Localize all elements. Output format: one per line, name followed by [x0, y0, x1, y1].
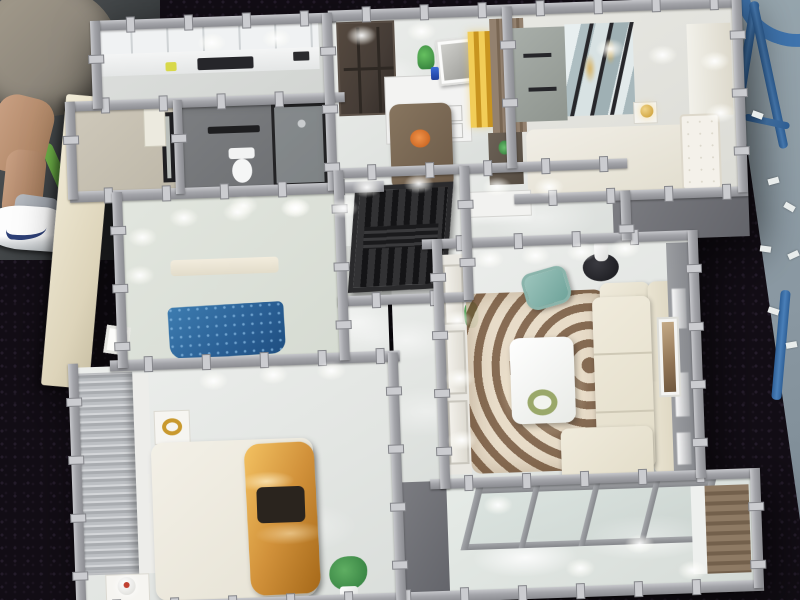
wall-clip — [732, 88, 748, 98]
balcony-wood-cabinet — [704, 484, 751, 573]
wall-clip — [72, 571, 88, 581]
cooktop — [197, 56, 253, 70]
wall-clip — [320, 46, 336, 56]
wall-clip — [126, 16, 136, 32]
wall-clip — [548, 190, 558, 206]
wall-clip — [618, 224, 634, 234]
wall-clip — [70, 513, 86, 523]
wall-clip — [638, 469, 648, 485]
wall-clip — [88, 54, 104, 64]
yellow-item — [165, 62, 176, 71]
wall-clip — [392, 560, 408, 570]
wall-clip — [522, 473, 532, 489]
wall-clip — [110, 226, 126, 236]
wall-clip — [162, 185, 172, 201]
apartment-scale-model — [46, 0, 773, 600]
wall-clip — [734, 146, 750, 156]
wall-clip — [375, 348, 385, 364]
wall-clip — [688, 322, 704, 332]
wall-clip — [66, 397, 82, 407]
wall-clip — [541, 158, 551, 174]
flower-tray — [256, 486, 305, 524]
wall-clip — [502, 98, 518, 108]
wall-clip — [420, 4, 430, 20]
wall-clip — [425, 162, 435, 178]
wall-clip — [372, 292, 382, 308]
toilet-tank — [228, 147, 254, 159]
wall-clip — [278, 181, 288, 197]
wall-clip — [386, 386, 402, 396]
wall-clip — [202, 354, 212, 370]
wall-clip — [651, 0, 661, 12]
wall-clip — [500, 40, 516, 50]
wall-clip — [362, 6, 372, 22]
wall-clip — [464, 475, 474, 491]
wall-clip — [184, 14, 194, 30]
wall-clip — [220, 183, 230, 199]
wall-clip — [228, 595, 238, 600]
wall-clip — [434, 389, 450, 399]
wall-clip — [664, 186, 674, 202]
wall-clip — [730, 30, 746, 40]
wall-clip — [634, 581, 644, 597]
glass-sliding-doors — [461, 479, 716, 550]
wall-clip — [114, 342, 130, 352]
wall-clip — [300, 10, 310, 26]
wardrobe-doors — [512, 26, 567, 122]
wall-clip — [750, 560, 766, 570]
wall-clip — [535, 0, 545, 16]
shower-enclosure — [271, 103, 328, 187]
wall-clip — [286, 593, 296, 600]
kitchen-sink — [293, 51, 309, 61]
wall-clip — [112, 284, 128, 294]
tufted-headboard — [680, 113, 723, 190]
wall-clip — [457, 200, 473, 210]
wall-clip — [572, 231, 582, 247]
framed-art — [657, 317, 682, 398]
mirrored-wardrobe — [564, 22, 635, 116]
wall-clip — [333, 262, 349, 272]
wall-clip — [576, 583, 586, 599]
wall-clip — [709, 0, 719, 10]
wall-clip — [436, 447, 452, 457]
wall-clip — [260, 352, 270, 368]
wall-clip — [514, 233, 524, 249]
wall-clip — [430, 273, 446, 283]
wall-clip — [748, 502, 764, 512]
wall-clip — [344, 591, 354, 600]
wall-clip — [722, 184, 732, 200]
wall-clip — [460, 587, 470, 600]
wall-clip — [331, 204, 347, 214]
utility-shelf — [143, 106, 166, 147]
white-vase — [594, 241, 609, 261]
wall-clip — [686, 264, 702, 274]
paper-scrap — [760, 245, 772, 252]
blue-vase — [431, 67, 439, 80]
wall-clip — [335, 320, 351, 330]
wall-clip — [432, 331, 448, 341]
green-plant — [417, 45, 435, 70]
photo-scene — [0, 0, 800, 600]
wall-clip — [274, 91, 284, 107]
wall-clip — [483, 160, 493, 176]
wall-clip — [144, 356, 154, 372]
wall-clip — [388, 444, 404, 454]
wall-clip — [63, 135, 79, 145]
wall-clip — [217, 93, 227, 109]
lit-niche-wall — [686, 23, 733, 116]
wall-clip — [242, 12, 252, 28]
wall-clip — [322, 104, 338, 114]
wall-clip — [68, 455, 84, 465]
wall-clip — [606, 188, 616, 204]
wall-clip — [593, 0, 603, 14]
wall-clip — [690, 380, 706, 390]
wall-clip — [367, 164, 377, 180]
wall-clip — [318, 350, 328, 366]
wall-clip — [459, 258, 475, 268]
wall-clip — [692, 579, 702, 595]
wall-clip — [477, 2, 487, 18]
wall-clip — [390, 502, 406, 512]
wall-clip — [580, 471, 590, 487]
wall-clip — [518, 585, 528, 600]
wall-clip — [171, 134, 187, 144]
wall-clip — [692, 438, 708, 448]
wall — [620, 190, 632, 240]
wall-clip — [159, 95, 169, 111]
wall-clip — [599, 156, 609, 172]
